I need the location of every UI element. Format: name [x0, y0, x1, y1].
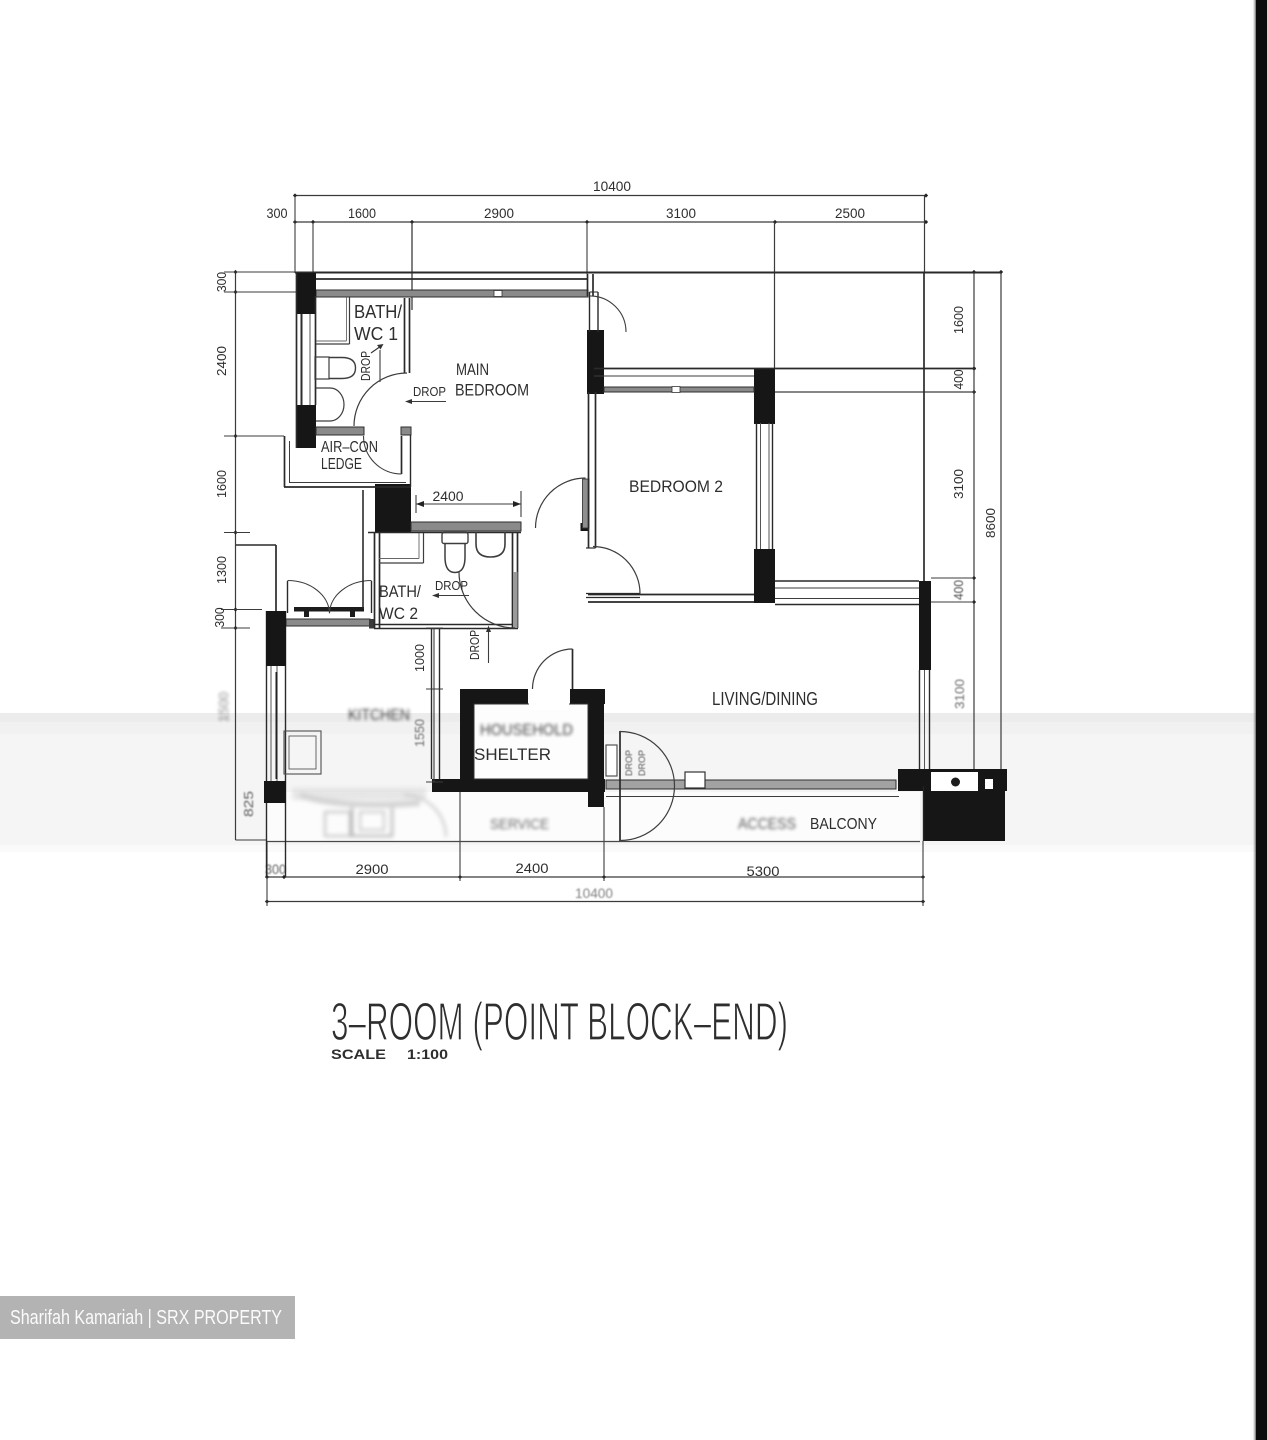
svg-text:SERVICE: SERVICE [490, 816, 549, 833]
svg-text:BALCONY: BALCONY [810, 816, 877, 833]
svg-text:BEDROOM 2: BEDROOM 2 [629, 477, 723, 496]
svg-text:2400: 2400 [214, 346, 229, 376]
svg-text:MAIN: MAIN [456, 360, 489, 379]
svg-text:2900: 2900 [356, 862, 389, 877]
svg-text:ACCESS: ACCESS [738, 816, 796, 833]
svg-text:KITCHEN: KITCHEN [348, 707, 410, 724]
svg-text:10400: 10400 [593, 178, 631, 194]
svg-text:1600: 1600 [348, 206, 376, 221]
svg-text:1500: 1500 [216, 692, 231, 722]
svg-text:1300: 1300 [214, 556, 229, 584]
svg-text:1:100: 1:100 [407, 1047, 448, 1062]
svg-text:SCALE: SCALE [331, 1047, 386, 1062]
svg-text:LEDGE: LEDGE [321, 456, 362, 473]
svg-text:400: 400 [951, 580, 966, 600]
svg-text:BATH/: BATH/ [379, 582, 421, 601]
svg-text:10400: 10400 [575, 886, 613, 901]
svg-text:HOUSEHOLD: HOUSEHOLD [480, 722, 573, 739]
svg-text:400: 400 [951, 370, 966, 390]
svg-text:5300: 5300 [747, 864, 780, 879]
svg-text:DROP: DROP [359, 351, 373, 381]
svg-text:BATH/: BATH/ [354, 302, 402, 322]
svg-text:825: 825 [241, 791, 256, 817]
svg-text:WC 1: WC 1 [354, 324, 398, 344]
svg-text:LIVING/DINING: LIVING/DINING [712, 689, 818, 709]
svg-text:DROP: DROP [435, 579, 468, 593]
svg-text:AIR–CON: AIR–CON [321, 439, 378, 456]
svg-text:2900: 2900 [484, 206, 514, 221]
svg-text:300: 300 [265, 862, 286, 877]
svg-text:300: 300 [212, 608, 227, 628]
svg-text:DROP: DROP [624, 750, 634, 776]
svg-text:1600: 1600 [214, 470, 229, 498]
svg-text:BEDROOM: BEDROOM [455, 381, 529, 400]
svg-text:DROP: DROP [468, 630, 482, 660]
svg-text:3100: 3100 [952, 679, 967, 709]
svg-text:3100: 3100 [666, 206, 696, 221]
svg-text:SHELTER: SHELTER [474, 745, 551, 764]
svg-text:2400: 2400 [433, 489, 464, 504]
svg-text:300: 300 [267, 206, 288, 221]
svg-text:Sharifah Kamariah | SRX PROPER: Sharifah Kamariah | SRX PROPERTY [10, 1307, 282, 1329]
svg-text:3–ROOM (POINT BLOCK–END): 3–ROOM (POINT BLOCK–END) [331, 992, 788, 1052]
svg-text:WC 2: WC 2 [379, 604, 418, 623]
svg-text:300: 300 [214, 272, 229, 292]
svg-text:3100: 3100 [951, 469, 966, 499]
svg-text:2400: 2400 [516, 861, 549, 876]
svg-text:1600: 1600 [951, 306, 966, 334]
svg-text:1550: 1550 [412, 719, 427, 747]
svg-text:2500: 2500 [835, 206, 865, 221]
svg-text:DROP: DROP [637, 750, 647, 776]
svg-text:8600: 8600 [983, 508, 998, 538]
svg-text:1000: 1000 [412, 644, 427, 672]
svg-text:DROP: DROP [413, 385, 446, 399]
